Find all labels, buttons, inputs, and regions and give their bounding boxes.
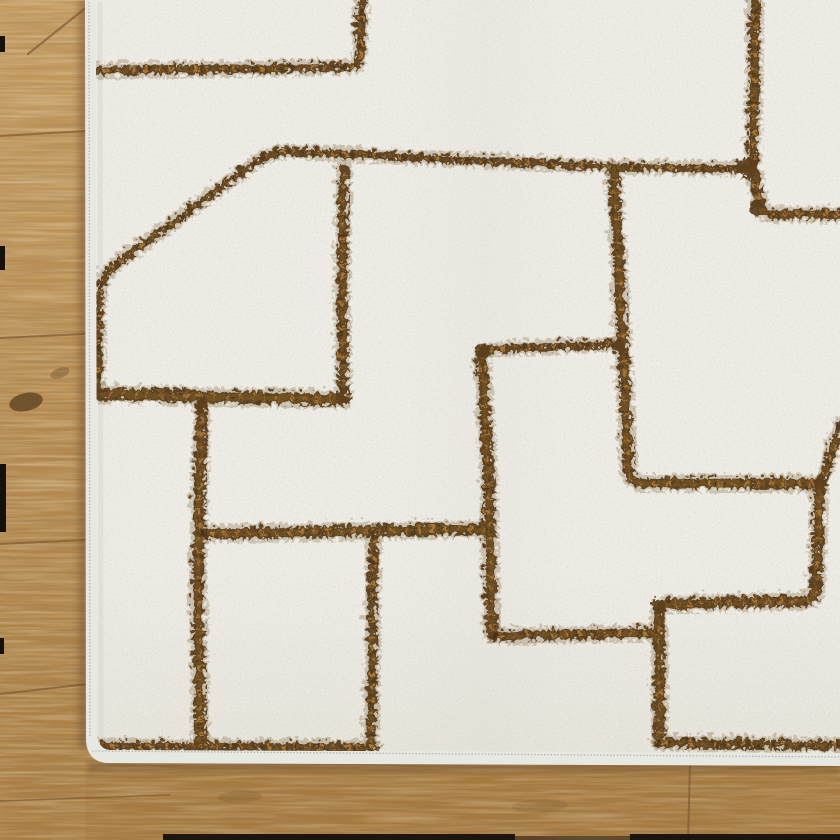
pattern-line-junction bbox=[610, 337, 624, 351]
pattern-line-junction bbox=[192, 396, 206, 410]
floor-bottom-gap bbox=[515, 836, 630, 840]
rug-pile-texture bbox=[0, 0, 840, 840]
rug-left-shadow bbox=[74, 0, 86, 748]
pattern-line-junction bbox=[747, 198, 761, 212]
pattern-line-junction bbox=[471, 341, 487, 357]
floor-edge-gap bbox=[0, 638, 4, 654]
floor-edge-gap bbox=[0, 246, 5, 270]
pattern-line-junction bbox=[332, 386, 348, 402]
pattern-line-junction bbox=[649, 596, 663, 610]
rug bbox=[0, 0, 840, 840]
pattern-line-mid-vertical bbox=[339, 166, 341, 393]
rug-product-photo bbox=[0, 0, 840, 840]
pattern-line-left-vertical bbox=[195, 399, 199, 741]
floor-bottom-gap bbox=[163, 834, 515, 840]
rug-on-wood-floor-image bbox=[0, 0, 840, 840]
floor-edge-gap bbox=[0, 36, 5, 52]
pattern-line-bottom-right-horizontal bbox=[656, 740, 840, 743]
pattern-line-junction bbox=[811, 472, 825, 486]
floor-edge-gap bbox=[0, 464, 6, 532]
floor-bottom-gap bbox=[630, 834, 840, 840]
pattern-line-junction bbox=[734, 154, 756, 176]
